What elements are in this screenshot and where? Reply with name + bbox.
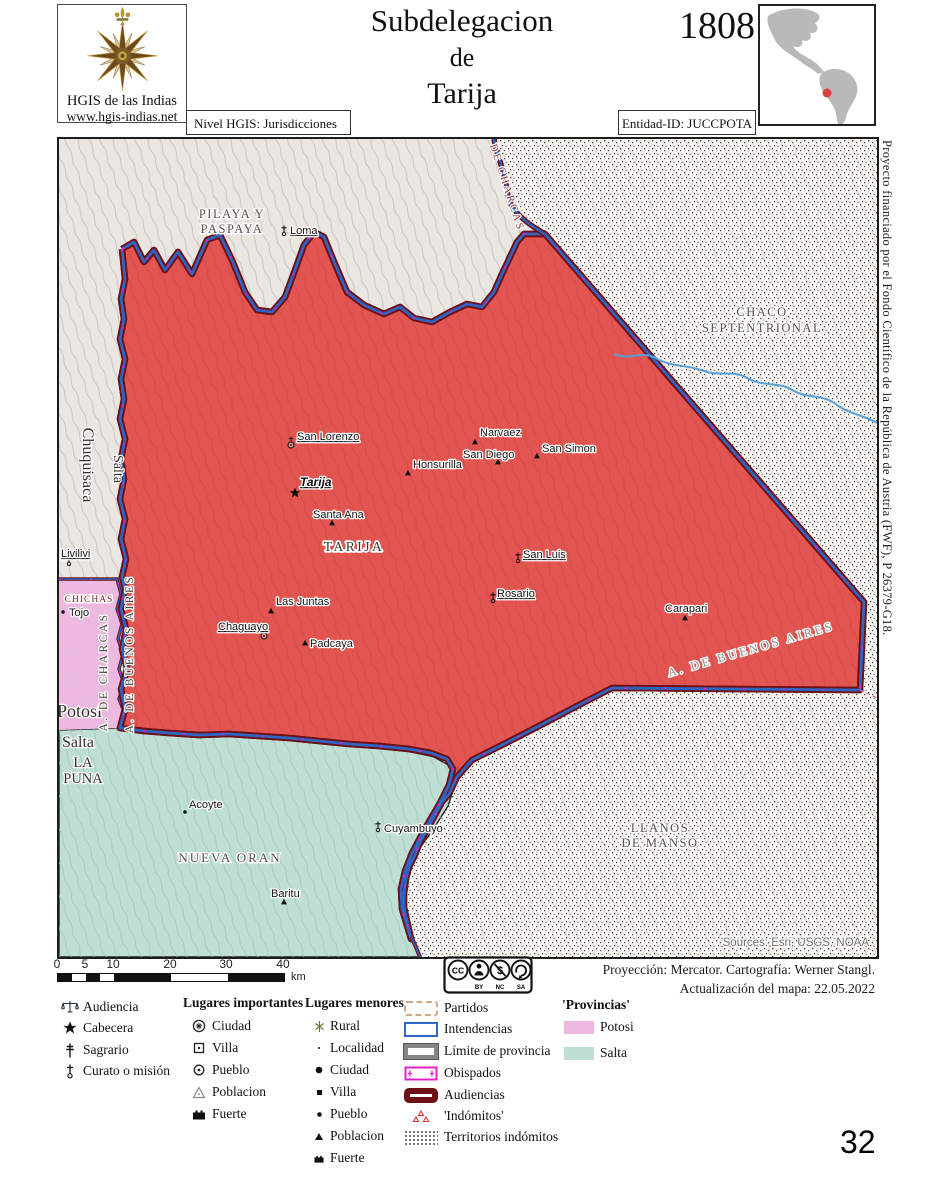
svg-text:DE MANSO: DE MANSO xyxy=(622,836,699,850)
city-circle-star-icon xyxy=(186,1018,212,1034)
region-la-puna: LA xyxy=(73,755,93,771)
legend-curato: Curato o misión xyxy=(57,1061,170,1081)
salta-province-area xyxy=(59,728,456,957)
place-san-simon: San Simon xyxy=(542,443,596,455)
legend-fuerte-menor: Fuerte xyxy=(308,1148,365,1168)
legend-intendencias: Intendencias xyxy=(404,1019,512,1039)
svg-text:CC: CC xyxy=(452,965,464,975)
small-dot-icon xyxy=(308,1044,330,1052)
audiencias-swatch xyxy=(404,1088,438,1103)
filled-circle-icon xyxy=(308,1065,330,1075)
legend-poblacion-imp: Poblacion xyxy=(186,1082,266,1102)
legend-poblacion-menor: Poblacion xyxy=(308,1126,384,1146)
region-nueva-oran: NUEVA ORAN xyxy=(178,850,281,865)
salta-swatch xyxy=(564,1047,594,1060)
logo-box: HGIS de las Indias www.hgis-indias.net xyxy=(57,4,187,123)
logo-title: HGIS de las Indias xyxy=(58,93,186,110)
map-sheet: HGIS de las Indias www.hgis-indias.net N… xyxy=(0,0,927,1200)
place-chaguayo: Chaguayo xyxy=(218,621,268,633)
poblacion-triangle-icon xyxy=(186,1086,212,1099)
svg-text:SEPTENTRIONAL: SEPTENTRIONAL xyxy=(702,321,822,335)
legend-obispados: Obispados xyxy=(404,1063,501,1083)
compass-rose-icon xyxy=(60,5,185,91)
projection-credit: Proyección: Mercator. Cartografía: Werne… xyxy=(475,960,875,979)
star-icon xyxy=(57,1021,83,1035)
legend-header-menores: Lugares menores xyxy=(305,995,404,1011)
legend-pueblo-imp: Pueblo xyxy=(186,1060,250,1080)
place-padcaya: Padcaya xyxy=(310,638,354,650)
page-number: 32 xyxy=(840,1124,876,1161)
legend-header-importantes: Lugares importantes xyxy=(183,995,303,1011)
scale-bar-segments xyxy=(57,973,285,982)
place-tarija-city: Tarija xyxy=(300,475,332,489)
partidos-swatch xyxy=(404,1001,438,1016)
limite-provincia-swatch xyxy=(404,1044,438,1059)
entity-id-box: Entidad-ID: JUCCPOTA xyxy=(618,110,756,135)
place-san-lorenzo: San Lorenzo xyxy=(297,431,359,443)
region-pilaya: PILAYA Y xyxy=(199,207,265,221)
title-line3: Tarija xyxy=(186,75,738,112)
filled-dot-icon xyxy=(308,1110,330,1119)
place-carapari: Carapari xyxy=(665,603,707,615)
region-chuquisaca: Chuquisaca xyxy=(79,428,96,503)
pueblo-circle-icon xyxy=(186,1063,212,1077)
map-sources: Sources: Esri, USGS, NOAA xyxy=(723,937,870,949)
legend-villa-menor: Villa xyxy=(308,1082,356,1102)
filled-square-icon xyxy=(308,1088,330,1097)
place-tojo: Tojo xyxy=(69,607,89,619)
small-fort-icon xyxy=(308,1153,330,1164)
legend-audiencias: Audiencias xyxy=(404,1085,505,1105)
region-salta: Salta xyxy=(62,734,94,751)
legend-sagrario: Sagrario xyxy=(57,1040,129,1060)
funding-note: Proyecto financiado por el Fondo Científ… xyxy=(879,140,894,700)
attribution: Proyección: Mercator. Cartografía: Werne… xyxy=(475,960,875,998)
place-san-luis: San Luis xyxy=(523,549,566,561)
place-baritu: Baritu xyxy=(271,888,300,900)
mission-cross-icon xyxy=(57,1064,83,1079)
legend-salta: Salta xyxy=(564,1043,627,1063)
place-acoyte: Acoyte xyxy=(189,799,223,811)
hgis-level-box: Nivel HGIS: Jurisdicciones xyxy=(186,110,351,135)
place-narvaez: Narvaez xyxy=(480,427,521,439)
locator-inset-map xyxy=(758,4,876,126)
legend-limite-provincia: Límite de provincia xyxy=(404,1041,550,1061)
legend-cabecera: Cabecera xyxy=(57,1018,133,1038)
legend-header-provincias: 'Provincias' xyxy=(562,997,630,1013)
border-charcas-west: A. DE CHARCAS xyxy=(98,612,110,731)
legend-audiencia: Audiencia xyxy=(57,997,138,1017)
region-llanos: LLANOS xyxy=(631,821,689,835)
place-cuyambuyo: Cuyambuyo xyxy=(384,823,443,835)
update-date: Actualización del mapa: 22.05.2022 xyxy=(475,979,875,998)
scales-icon xyxy=(57,1000,83,1015)
legend-potosi: Potosi xyxy=(564,1017,634,1037)
logo-url: www.hgis-indias.net xyxy=(58,109,186,125)
villa-square-icon xyxy=(186,1041,212,1055)
filled-triangle-icon xyxy=(308,1132,330,1141)
svg-text:PUNA: PUNA xyxy=(63,771,103,787)
territorios-swatch xyxy=(404,1130,438,1145)
place-honsurilla: Honsurilla xyxy=(413,459,463,471)
intendencias-swatch xyxy=(404,1022,438,1037)
legend-ciudad-menor: Ciudad xyxy=(308,1060,369,1080)
legend-villa-imp: Villa xyxy=(186,1038,238,1058)
indomitos-swatch xyxy=(404,1109,438,1124)
legend-indomitos: 'Indómitos' xyxy=(404,1106,504,1126)
potosi-swatch xyxy=(564,1021,594,1034)
patriarchal-cross-icon xyxy=(57,1043,83,1058)
legend-rural: Rural xyxy=(308,1016,360,1036)
border-buenos-aires-west: A. DE BUENOS AIRES xyxy=(124,575,136,734)
legend-fuerte-imp: Fuerte xyxy=(186,1104,247,1124)
region-chichas: CHICHAS xyxy=(65,595,114,605)
legend-ciudad-imp: Ciudad xyxy=(186,1016,251,1036)
location-dot xyxy=(823,89,832,98)
americas-silhouette xyxy=(760,6,874,124)
place-livilivi: Livilivi xyxy=(61,548,90,560)
fort-icon xyxy=(186,1107,212,1121)
place-las-juntas: Las Juntas xyxy=(276,596,330,608)
legend-partidos: Partidos xyxy=(404,998,488,1018)
scale-unit: km xyxy=(291,971,306,983)
map-year: 1808 xyxy=(607,4,755,48)
region-salta-strip: Salta xyxy=(110,455,125,484)
region-potosi: Potosi xyxy=(59,701,102,721)
legend-localidad: Localidad xyxy=(308,1038,384,1058)
legend-pueblo-menor: Pueblo xyxy=(308,1104,368,1124)
place-loma: Loma xyxy=(290,225,318,237)
scale-bar: 0 5 10 20 30 40 km xyxy=(55,957,315,989)
svg-text:PASPAYA: PASPAYA xyxy=(201,222,264,236)
place-rosario: Rosario xyxy=(497,588,535,600)
legend-territorios-indomitos: Territorios indómitos xyxy=(404,1127,558,1147)
rural-asterisk-icon xyxy=(308,1020,330,1033)
region-tarija: TARIJA xyxy=(324,539,384,554)
obispados-swatch xyxy=(404,1066,438,1081)
scale-tick: 0 xyxy=(54,957,61,971)
place-san-diego: San Diego xyxy=(463,449,514,461)
place-santa-ana: Santa Ana xyxy=(313,509,365,521)
main-map: PILAYA Y PASPAYA CHACO SEPTENTRIONAL LLA… xyxy=(57,137,879,959)
region-chaco: CHACO xyxy=(736,305,787,319)
